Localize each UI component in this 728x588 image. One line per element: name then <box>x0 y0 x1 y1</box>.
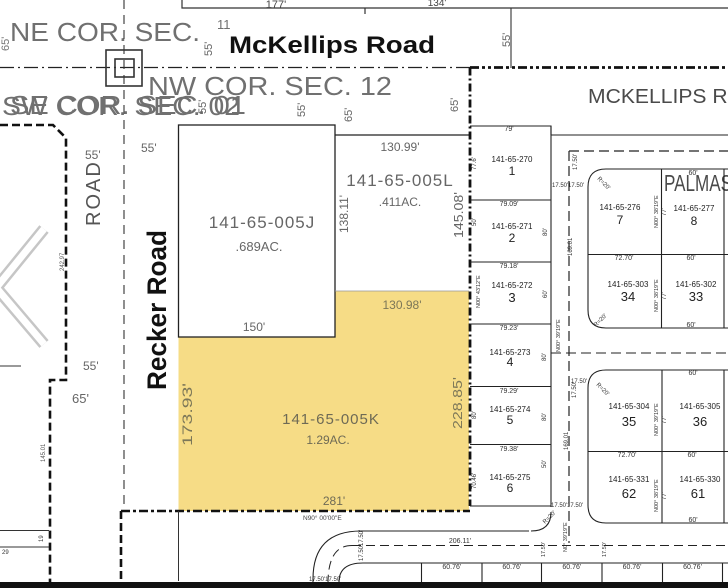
svg-text:80': 80' <box>542 413 548 421</box>
svg-text:29: 29 <box>2 550 9 556</box>
svg-text:17.50': 17.50' <box>541 542 547 557</box>
svg-text:65': 65' <box>0 37 12 51</box>
svg-text:65': 65' <box>72 391 89 406</box>
svg-text:SE COR. SEC. 01: SE COR. SEC. 01 <box>10 90 246 120</box>
svg-text:N00° 38'19"E: N00° 38'19"E <box>654 195 660 228</box>
svg-text:242.97: 242.97 <box>60 252 66 271</box>
svg-text:Recker Road: Recker Road <box>142 230 172 390</box>
svg-text:79.09': 79.09' <box>500 201 519 208</box>
svg-text:17.50': 17.50' <box>551 503 567 509</box>
svg-text:17.50'17.50': 17.50'17.50' <box>309 577 341 583</box>
svg-text:55': 55' <box>296 103 308 117</box>
svg-text:60.76': 60.76' <box>623 564 642 571</box>
svg-text:281': 281' <box>323 494 345 508</box>
svg-text:60': 60' <box>543 290 549 298</box>
svg-text:72.70': 72.70' <box>618 452 637 459</box>
svg-text:145.01: 145.01 <box>41 443 47 462</box>
svg-text:55': 55' <box>83 359 99 373</box>
svg-text:134': 134' <box>428 0 447 9</box>
svg-text:169.01: 169.01 <box>564 431 570 450</box>
svg-text:MCKELLIPS RO: MCKELLIPS RO <box>588 86 728 108</box>
svg-text:60.76': 60.76' <box>502 564 521 571</box>
svg-text:141-65-302: 141-65-302 <box>676 280 717 289</box>
svg-text:60': 60' <box>688 170 697 177</box>
svg-text:1: 1 <box>509 164 516 178</box>
svg-text:55': 55' <box>197 100 209 114</box>
svg-text:17.50': 17.50' <box>572 382 578 398</box>
svg-text:6: 6 <box>507 481 514 495</box>
svg-text:141-65-005K: 141-65-005K <box>282 411 380 428</box>
svg-text:141-65-304: 141-65-304 <box>609 402 650 411</box>
svg-text:141-65-005L: 141-65-005L <box>346 171 453 190</box>
svg-text:141-65-276: 141-65-276 <box>600 203 641 212</box>
svg-text:150': 150' <box>243 320 265 334</box>
svg-text:4: 4 <box>507 355 514 369</box>
svg-text:60.76': 60.76' <box>442 564 461 571</box>
svg-text:50': 50' <box>542 460 548 468</box>
svg-text:141-65-277: 141-65-277 <box>674 204 715 213</box>
svg-text:1.29AC.: 1.29AC. <box>306 433 349 447</box>
svg-text:N00° 43'12"E: N00° 43'12"E <box>476 275 482 308</box>
svg-text:70.46': 70.46' <box>472 473 478 489</box>
svg-text:65': 65' <box>343 108 355 122</box>
svg-text:N00° 39'19"E: N00° 39'19"E <box>556 319 562 352</box>
svg-text:17.50': 17.50' <box>567 503 583 509</box>
svg-text:80': 80' <box>542 353 548 361</box>
svg-text:228.85': 228.85' <box>450 377 465 429</box>
svg-text:77': 77' <box>662 292 668 300</box>
svg-text:2: 2 <box>509 231 516 245</box>
svg-text:60': 60' <box>688 517 697 524</box>
svg-text:34: 34 <box>621 289 635 304</box>
svg-text:NE COR. SEC.: NE COR. SEC. <box>10 17 200 47</box>
svg-text:77': 77' <box>662 492 668 500</box>
svg-text:7: 7 <box>617 213 624 227</box>
svg-text:17.50': 17.50' <box>359 530 365 546</box>
svg-text:55': 55' <box>85 148 101 162</box>
svg-text:177': 177' <box>266 0 286 11</box>
svg-text:60': 60' <box>687 452 696 459</box>
svg-text:55': 55' <box>501 33 513 47</box>
svg-text:8: 8 <box>691 214 698 228</box>
svg-text:145.08': 145.08' <box>451 192 466 238</box>
svg-text:130.98': 130.98' <box>383 298 422 312</box>
svg-text:141-65-305: 141-65-305 <box>680 402 721 411</box>
svg-text:138.11': 138.11' <box>337 195 351 233</box>
svg-text:141-65-272: 141-65-272 <box>492 281 533 290</box>
svg-text:55': 55' <box>141 141 157 155</box>
svg-text:N90° 00'00"E: N90° 00'00"E <box>303 514 342 522</box>
svg-text:17.50': 17.50' <box>602 542 608 557</box>
svg-text:N0° 39'19"E: N0° 39'19"E <box>563 522 569 552</box>
svg-text:141-65-005J: 141-65-005J <box>209 213 315 232</box>
svg-text:60.76': 60.76' <box>562 564 581 571</box>
svg-text:17.50': 17.50' <box>568 183 584 189</box>
svg-text:60': 60' <box>686 255 695 262</box>
svg-text:60': 60' <box>688 370 697 377</box>
svg-text:3: 3 <box>508 290 515 305</box>
svg-text:33: 33 <box>689 289 703 304</box>
svg-text:141-65-270: 141-65-270 <box>492 155 533 164</box>
svg-text:77.6': 77.6' <box>472 157 478 170</box>
svg-text:17.50': 17.50' <box>573 154 579 170</box>
svg-text:80': 80' <box>543 228 549 236</box>
svg-text:130.99': 130.99' <box>381 140 420 154</box>
svg-text:77': 77' <box>662 416 668 424</box>
svg-text:141-65-303: 141-65-303 <box>608 280 649 289</box>
svg-text:N00° 38'19"E: N00° 38'19"E <box>654 479 660 512</box>
svg-text:169.01: 169.01 <box>568 237 574 256</box>
svg-text:79.29': 79.29' <box>500 388 519 395</box>
svg-text:.411AC.: .411AC. <box>379 195 421 209</box>
svg-text:55': 55' <box>203 42 215 56</box>
svg-text:80': 80' <box>472 411 478 419</box>
svg-text:206.11': 206.11' <box>449 538 471 545</box>
svg-text:N00° 38'19"E: N00° 38'19"E <box>654 279 660 312</box>
svg-text:McKellips Road: McKellips Road <box>229 32 435 59</box>
svg-text:61: 61 <box>691 486 705 501</box>
svg-text:65': 65' <box>449 98 461 112</box>
svg-text:5: 5 <box>507 413 514 427</box>
svg-text:141-65-271: 141-65-271 <box>492 222 533 231</box>
svg-text:141-65-331: 141-65-331 <box>609 475 650 484</box>
svg-text:.689AC.: .689AC. <box>236 239 283 254</box>
svg-text:50': 50' <box>472 218 478 226</box>
svg-text:79.18': 79.18' <box>500 263 519 270</box>
svg-text:79': 79' <box>504 126 513 133</box>
svg-text:62: 62 <box>622 486 636 501</box>
svg-text:N00° 39'19"E: N00° 39'19"E <box>654 403 660 436</box>
svg-text:79.38': 79.38' <box>500 446 519 453</box>
svg-text:173.93': 173.93' <box>179 383 195 446</box>
svg-text:ROAD: ROAD <box>83 160 105 226</box>
svg-text:141-65-330: 141-65-330 <box>680 475 721 484</box>
svg-text:72.70': 72.70' <box>615 255 634 262</box>
svg-text:19: 19 <box>39 535 45 542</box>
svg-text:17.50': 17.50' <box>359 545 365 561</box>
svg-text:60': 60' <box>686 322 695 329</box>
svg-text:60.76': 60.76' <box>683 564 702 571</box>
svg-text:35: 35 <box>622 414 636 429</box>
svg-text:36: 36 <box>693 414 707 429</box>
svg-text:77': 77' <box>662 208 668 216</box>
svg-text:17.50': 17.50' <box>552 183 568 189</box>
svg-text:11: 11 <box>217 17 231 32</box>
svg-text:79.23': 79.23' <box>500 325 519 332</box>
